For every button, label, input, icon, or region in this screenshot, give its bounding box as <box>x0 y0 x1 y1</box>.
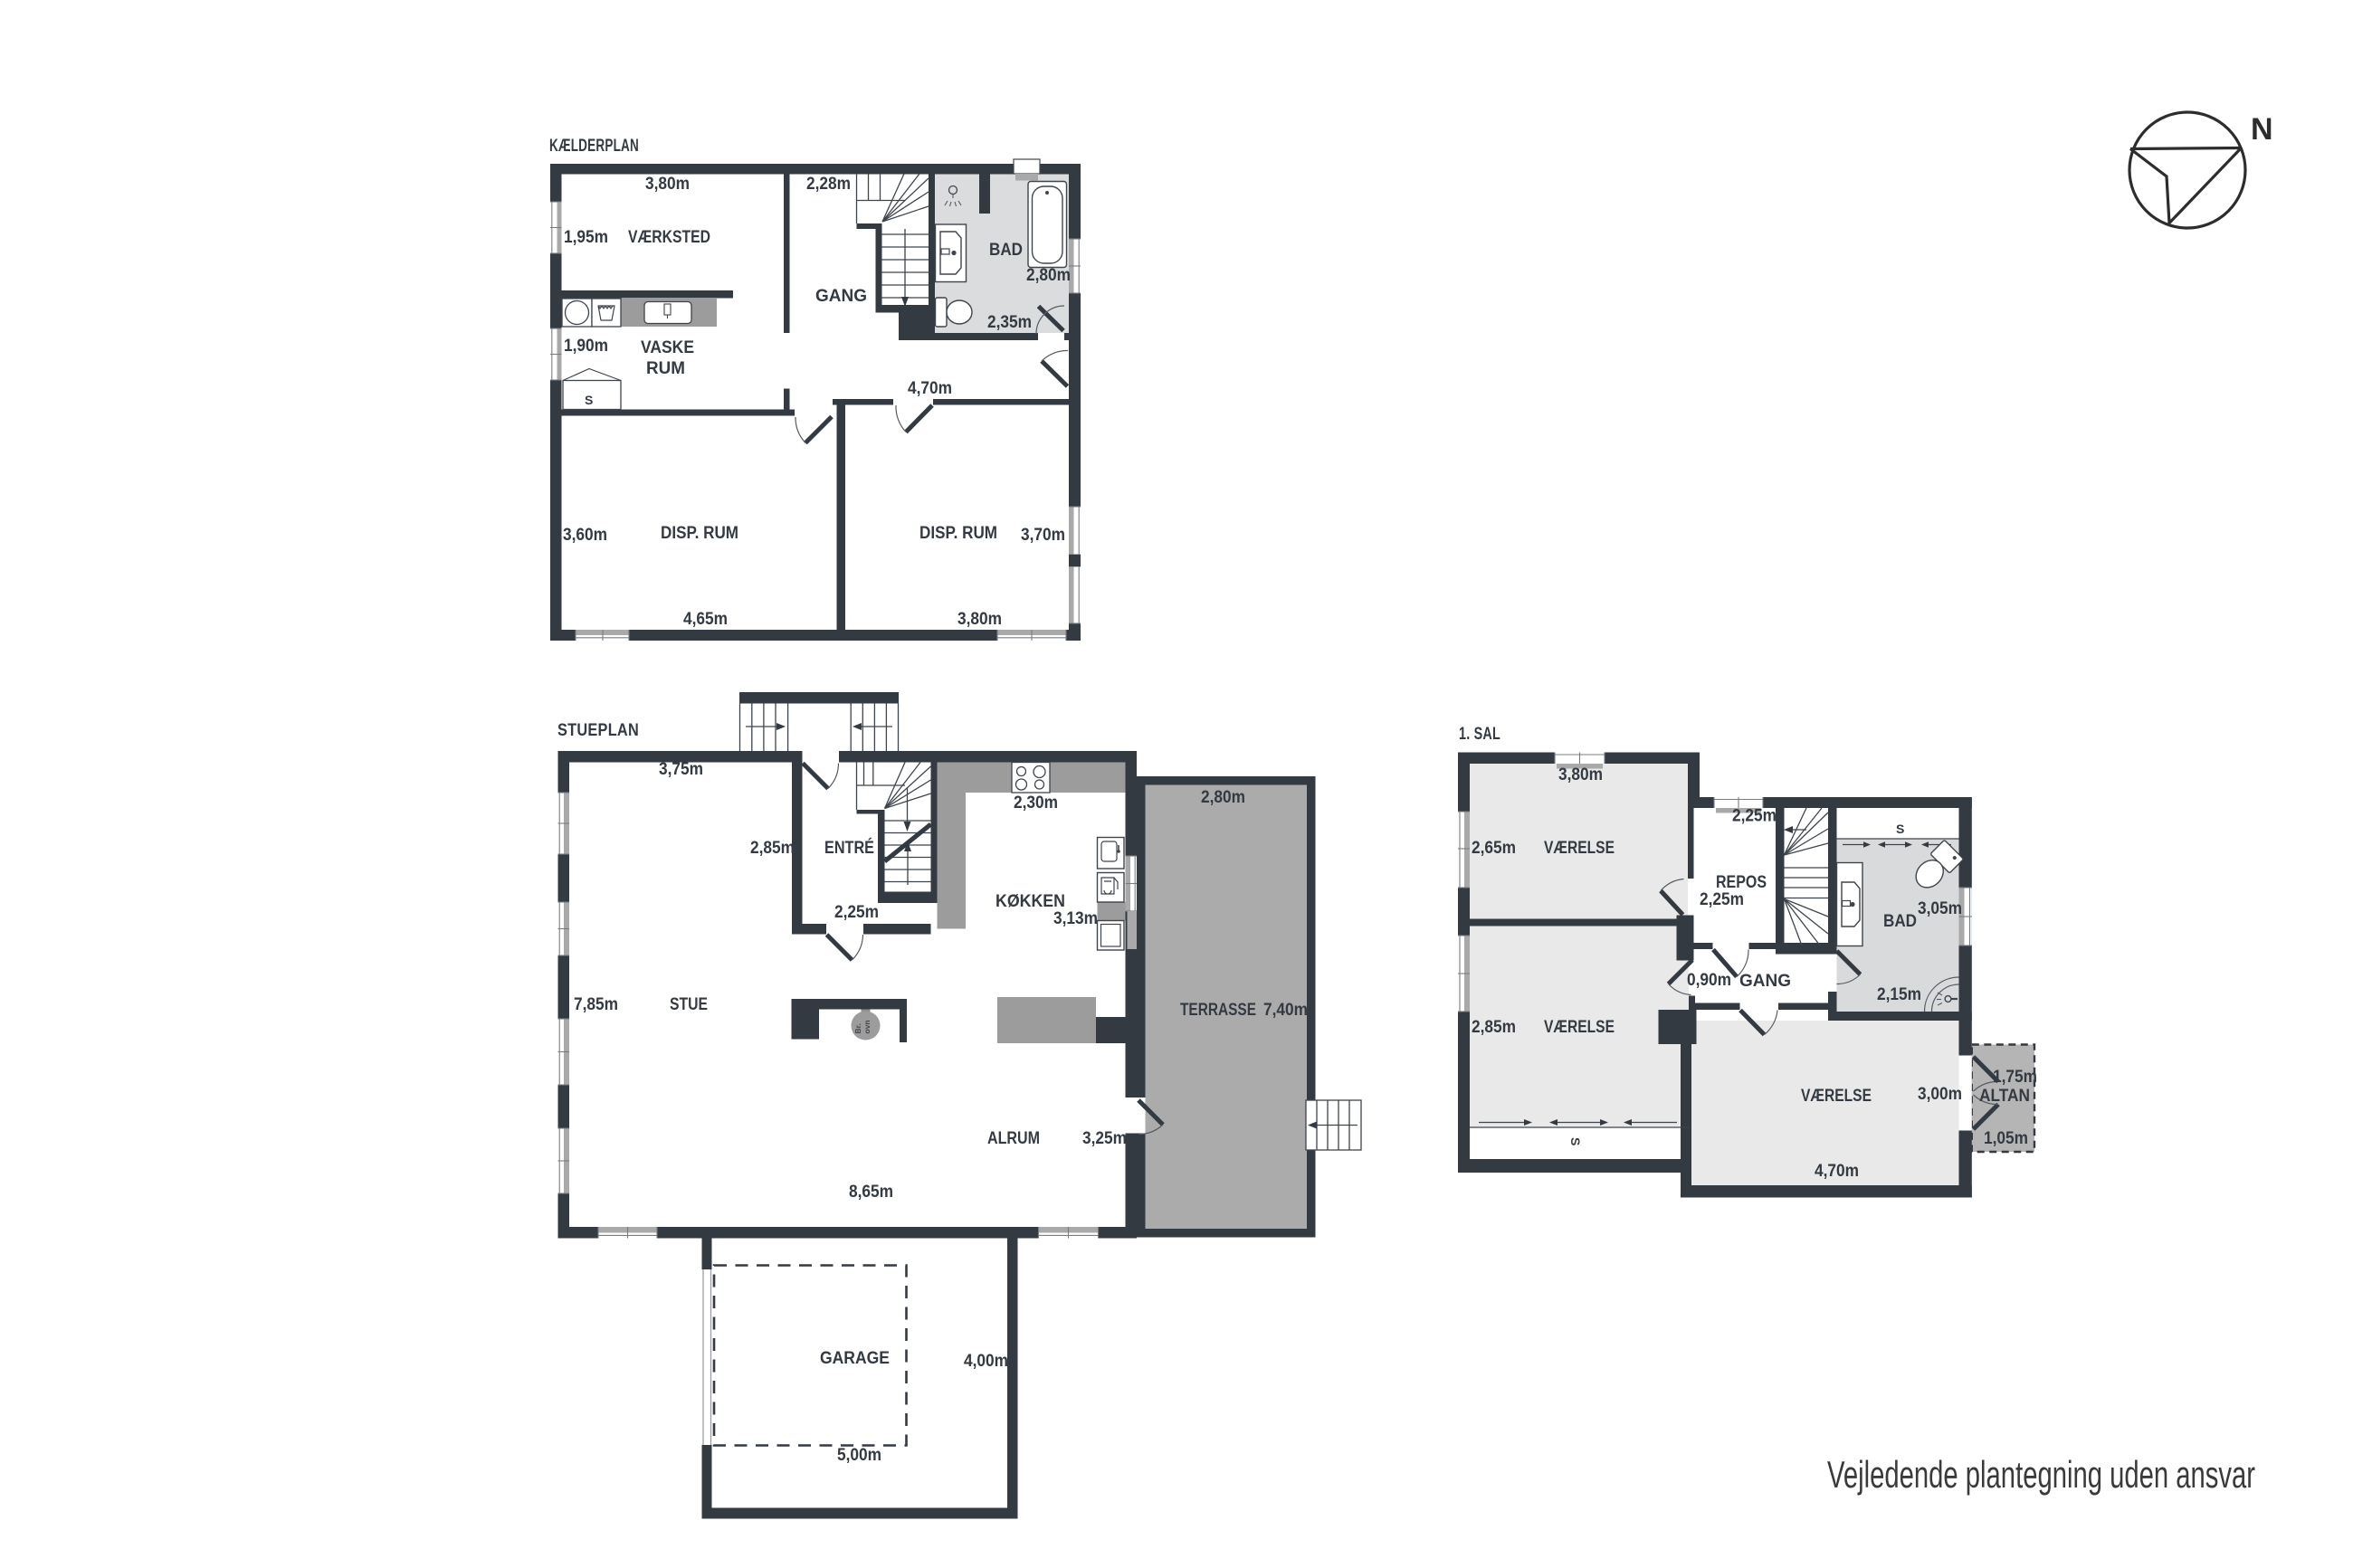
svg-text:BAD: BAD <box>1883 912 1917 931</box>
svg-text:VASKE: VASKE <box>641 338 694 357</box>
svg-text:1,95m: 1,95m <box>564 228 608 247</box>
svg-text:ALTAN: ALTAN <box>1979 1087 2030 1106</box>
svg-text:8,65m: 8,65m <box>849 1183 893 1202</box>
svg-text:1. SAL: 1. SAL <box>1459 725 1500 744</box>
svg-text:2,35m: 2,35m <box>987 313 1032 332</box>
svg-text:0,90m: 0,90m <box>1687 971 1731 990</box>
svg-text:VÆRELSE: VÆRELSE <box>1544 1018 1615 1037</box>
svg-text:2,25m: 2,25m <box>834 903 879 922</box>
svg-text:4,70m: 4,70m <box>1815 1162 1859 1181</box>
svg-text:N: N <box>2251 112 2273 147</box>
svg-text:VÆRELSE: VÆRELSE <box>1801 1087 1872 1106</box>
svg-text:3,60m: 3,60m <box>563 526 607 545</box>
svg-text:3,70m: 3,70m <box>1021 526 1065 545</box>
svg-text:STUE: STUE <box>670 995 708 1014</box>
svg-text:3,05m: 3,05m <box>1918 899 1962 918</box>
svg-text:1,75m: 1,75m <box>1993 1068 2037 1087</box>
svg-text:3,00m: 3,00m <box>1918 1085 1962 1104</box>
svg-text:TERRASSE: TERRASSE <box>1180 1001 1256 1020</box>
svg-text:S: S <box>1896 822 1904 836</box>
svg-text:7,85m: 7,85m <box>574 995 618 1014</box>
svg-text:REPOS: REPOS <box>1716 873 1767 892</box>
svg-text:2,25m: 2,25m <box>1732 807 1777 826</box>
svg-text:2,28m: 2,28m <box>806 175 851 194</box>
svg-text:ovn: ovn <box>862 1020 872 1033</box>
svg-text:2,15m: 2,15m <box>1877 985 1921 1004</box>
svg-text:2,85m: 2,85m <box>1472 1018 1516 1037</box>
svg-text:4,00m: 4,00m <box>964 1352 1008 1371</box>
svg-text:3,80m: 3,80m <box>1558 765 1603 784</box>
svg-text:RUM: RUM <box>646 359 685 378</box>
svg-text:2,30m: 2,30m <box>1014 794 1058 813</box>
svg-text:5,00m: 5,00m <box>837 1446 881 1465</box>
svg-text:1,90m: 1,90m <box>564 337 608 356</box>
svg-text:4,70m: 4,70m <box>908 379 952 398</box>
svg-text:ALRUM: ALRUM <box>987 1129 1040 1148</box>
svg-text:7,40m: 7,40m <box>1263 1001 1308 1020</box>
svg-text:GANG: GANG <box>815 287 867 306</box>
svg-text:KØKKEN: KØKKEN <box>995 892 1065 911</box>
svg-text:KÆLDERPLAN: KÆLDERPLAN <box>549 137 639 156</box>
svg-text:Vejledende plantegning uden an: Vejledende plantegning uden ansvar <box>1827 1453 2255 1496</box>
svg-text:BAD: BAD <box>989 241 1023 260</box>
svg-text:ENTRÉ: ENTRÉ <box>824 838 874 858</box>
svg-text:GANG: GANG <box>1739 972 1791 991</box>
svg-text:3,75m: 3,75m <box>659 760 703 779</box>
svg-text:2,25m: 2,25m <box>1700 890 1744 909</box>
svg-text:VÆRELSE: VÆRELSE <box>1544 839 1615 858</box>
svg-text:1,05m: 1,05m <box>1984 1129 2028 1148</box>
svg-text:2,85m: 2,85m <box>750 839 795 858</box>
svg-text:3,25m: 3,25m <box>1082 1129 1127 1148</box>
svg-text:2,80m: 2,80m <box>1026 266 1071 285</box>
svg-text:2,65m: 2,65m <box>1472 839 1516 858</box>
svg-text:3,80m: 3,80m <box>957 610 1002 629</box>
svg-text:VÆRKSTED: VÆRKSTED <box>628 228 710 247</box>
svg-text:3,80m: 3,80m <box>645 175 690 194</box>
svg-text:S: S <box>585 393 593 407</box>
svg-text:GARAGE: GARAGE <box>820 1349 890 1368</box>
svg-text:STUEPLAN: STUEPLAN <box>557 721 639 740</box>
svg-text:DISP. RUM: DISP. RUM <box>919 524 997 543</box>
svg-text:S: S <box>1568 1137 1583 1145</box>
svg-text:3,13m: 3,13m <box>1053 909 1098 928</box>
svg-text:Br.: Br. <box>853 1023 862 1033</box>
svg-text:DISP. RUM: DISP. RUM <box>661 524 738 543</box>
svg-text:2,80m: 2,80m <box>1201 788 1245 807</box>
svg-text:4,65m: 4,65m <box>683 610 728 629</box>
